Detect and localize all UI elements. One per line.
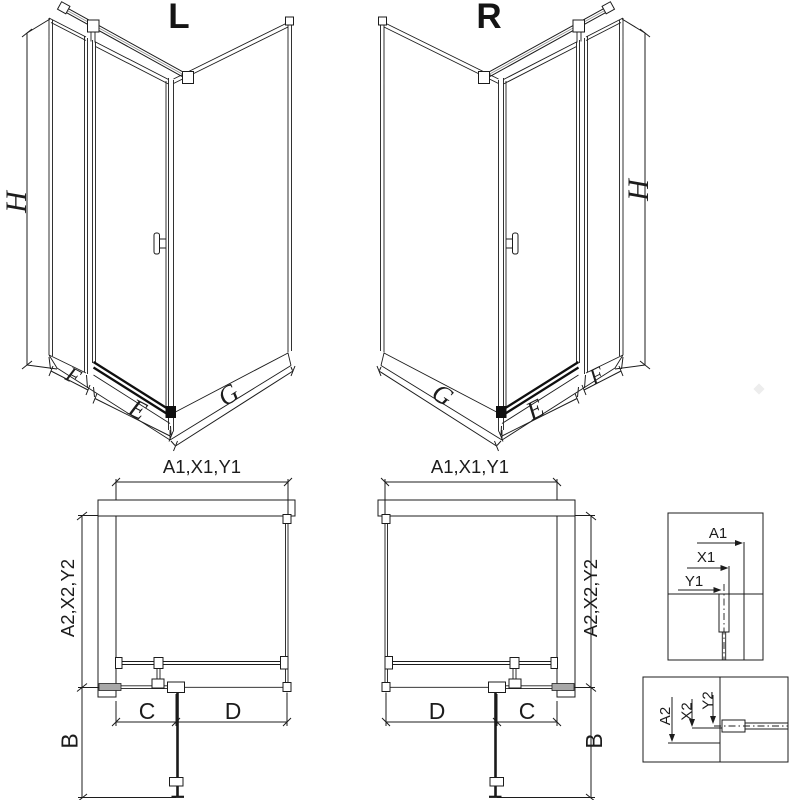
plan-left-side-wall <box>98 516 116 697</box>
detail-x2-label: X2 <box>679 702 696 720</box>
detail-a1-label: A1 <box>709 525 727 542</box>
iso-left-height-label: H <box>0 189 33 214</box>
iso-right-return-panel-label: G <box>427 378 459 413</box>
plan-left-door-label: D <box>225 698 242 724</box>
plan-left-depth-label: A2,X2,Y2 <box>57 559 78 637</box>
plan-left-width-label: A1,X1,Y1 <box>163 456 241 477</box>
glass-edge <box>745 723 788 729</box>
detail-y2-label: Y2 <box>700 691 717 709</box>
iso-left-side-panel-label: F <box>61 361 86 390</box>
watermark-dot <box>753 383 764 394</box>
detail-y1-label: Y1 <box>685 573 703 590</box>
iso-left-variant-label: L <box>168 0 189 36</box>
plan-left-swing-label: B <box>57 733 83 748</box>
iso-right-door-label: E <box>521 393 549 427</box>
plan-right-side-wall <box>557 516 575 697</box>
detail-a2-label: A2 <box>657 707 674 725</box>
plan-view-left <box>77 478 292 800</box>
plan-view-right <box>381 478 596 800</box>
plan-right-top-wall <box>378 500 575 516</box>
shower-enclosure-dimension-diagram: L H F E G R H F E G A1,X1,Y1 A2,X2,Y2 B … <box>0 0 800 800</box>
iso-right-height-label: H <box>622 177 655 202</box>
iso-view-right <box>377 2 650 451</box>
diagram-svg: L H F E G R H F E G A1,X1,Y1 A2,X2,Y2 B … <box>0 0 800 800</box>
detail-x1-label: X1 <box>697 549 715 566</box>
iso-left-return-panel-label: G <box>213 377 245 412</box>
plan-right-fixed-label: C <box>519 698 536 724</box>
plan-left-top-wall <box>98 500 295 516</box>
plan-right-door-label: D <box>429 698 446 724</box>
plan-right-swing-label: B <box>581 733 607 748</box>
plan-left-fixed-label: C <box>139 698 156 724</box>
iso-right-variant-label: R <box>476 0 501 36</box>
plan-right-width-label: A1,X1,Y1 <box>431 456 509 477</box>
plan-right-depth-label: A2,X2,Y2 <box>580 559 601 637</box>
